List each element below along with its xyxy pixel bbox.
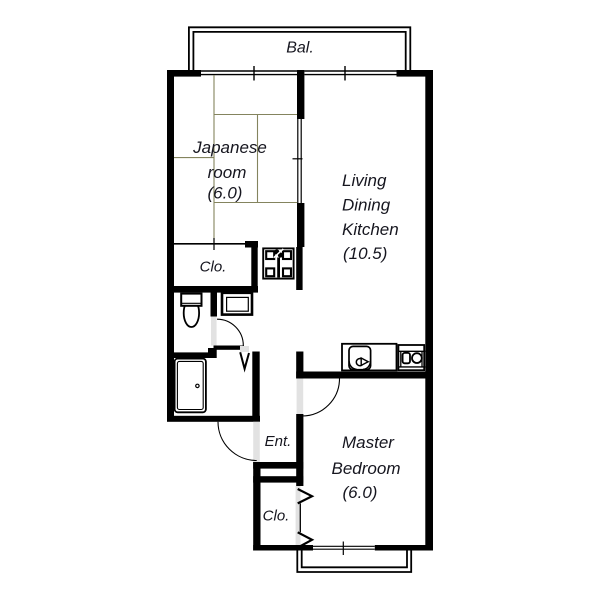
svg-text:(6.0): (6.0) — [343, 483, 378, 502]
svg-text:Living: Living — [342, 171, 387, 190]
svg-text:(6.0): (6.0) — [208, 184, 243, 203]
svg-text:Ent.: Ent. — [265, 433, 292, 450]
svg-text:Clo.: Clo. — [200, 259, 227, 276]
svg-text:Kitchen: Kitchen — [342, 220, 399, 239]
svg-text:(10.5): (10.5) — [343, 244, 387, 263]
svg-text:Clo.: Clo. — [263, 508, 290, 525]
svg-text:Japanese: Japanese — [192, 138, 267, 157]
svg-text:Bal.: Bal. — [286, 40, 314, 57]
svg-text:Master: Master — [342, 433, 395, 452]
svg-text:room: room — [208, 163, 247, 182]
svg-text:Bedroom: Bedroom — [332, 459, 401, 478]
svg-text:Dining: Dining — [342, 196, 391, 215]
